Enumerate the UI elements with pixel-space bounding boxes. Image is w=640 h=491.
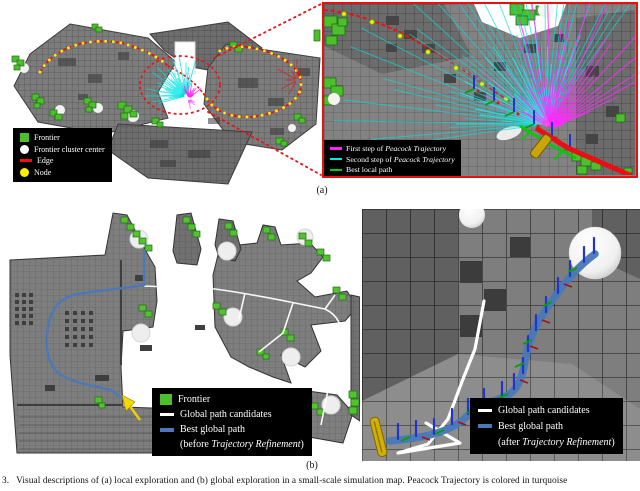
edge-swatch: [20, 159, 32, 162]
figure-caption: 3. Visual descriptions of (a) local expl…: [2, 476, 640, 486]
legend-refined-zoom: Global path candidates Best global path …: [470, 398, 623, 454]
legend-item-frontier: Frontier: [160, 392, 304, 407]
legend-label: (after Trajectory Refinement): [498, 437, 615, 448]
legend-label: Best global path: [498, 421, 563, 432]
legend-item-second-step: Second step of Peacock Trajectory: [330, 154, 455, 165]
legend-item-candidates: Global path candidates: [160, 407, 304, 422]
best-global-path-swatch: [160, 428, 174, 432]
frontier-swatch: [160, 394, 172, 405]
candidates-swatch: [160, 413, 174, 416]
frontier-swatch: [20, 133, 29, 142]
legend-local-map: Frontier Frontier cluster center Edge No…: [13, 128, 112, 182]
legend-label: Global path candidates: [498, 405, 590, 416]
legend-item-candidates: Global path candidates: [478, 402, 615, 418]
legend-label: Global path candidates: [180, 409, 272, 420]
waypoint-dot: [139, 381, 144, 386]
legend-item-node: Node: [20, 167, 105, 179]
legend-label: Frontier: [178, 394, 210, 405]
legend-label: Frontier cluster center: [34, 145, 105, 154]
legend-label: Best local path: [346, 165, 392, 174]
panel-global-exploration-map: Frontier Global path candidates Best glo…: [5, 205, 360, 460]
legend-item-before-refinement: (before Trajectory Refinement): [160, 437, 304, 452]
first-step-swatch: [330, 147, 342, 150]
candidates-swatch: [478, 409, 492, 412]
second-step-swatch: [330, 158, 342, 161]
legend-label: Edge: [37, 156, 53, 165]
cluster-center: [328, 93, 340, 105]
legend-peacock-zoom: First step of Peacock Trajectory Second …: [324, 140, 461, 178]
best-local-path-swatch: [330, 169, 342, 172]
legend-item-first-step: First step of Peacock Trajectory: [330, 143, 455, 154]
subfigure-label-a: (a): [300, 185, 344, 196]
legend-label: Frontier: [34, 133, 60, 142]
legend-item-cluster-center: Frontier cluster center: [20, 144, 105, 156]
first-step-rays-lower: [188, 100, 195, 109]
legend-label: Node: [34, 168, 51, 177]
legend-item-after-refinement: (after Trajectory Refinement): [478, 434, 615, 450]
legend-item-frontier: Frontier: [20, 132, 105, 144]
legend-label: Best global path: [180, 424, 245, 435]
panel-local-exploration-overview: Frontier Frontier cluster center Edge No…: [0, 0, 322, 190]
legend-global-map: Frontier Global path candidates Best glo…: [152, 388, 312, 456]
legend-label: First step of Peacock Trajectory: [346, 144, 446, 153]
panel-refined-trajectory-zoom: Global path candidates Best global path …: [362, 209, 640, 461]
subfigure-label-b: (b): [290, 460, 334, 471]
legend-item-best-local-path: Best local path: [330, 165, 455, 176]
legend-item-edge: Edge: [20, 155, 105, 167]
cluster-center-swatch: [20, 145, 29, 154]
voxel-wall-right: [576, 10, 635, 175]
legend-item-best-global-path: Best global path: [478, 418, 615, 434]
legend-label: Second step of Peacock Trajectory: [346, 155, 455, 164]
best-global-path-swatch: [478, 424, 492, 428]
legend-item-best-global-path: Best global path: [160, 422, 304, 437]
panel-peacock-trajectory-zoom: First step of Peacock Trajectory Second …: [322, 2, 638, 178]
legend-label: (before Trajectory Refinement): [180, 439, 304, 450]
node-swatch: [20, 168, 29, 177]
